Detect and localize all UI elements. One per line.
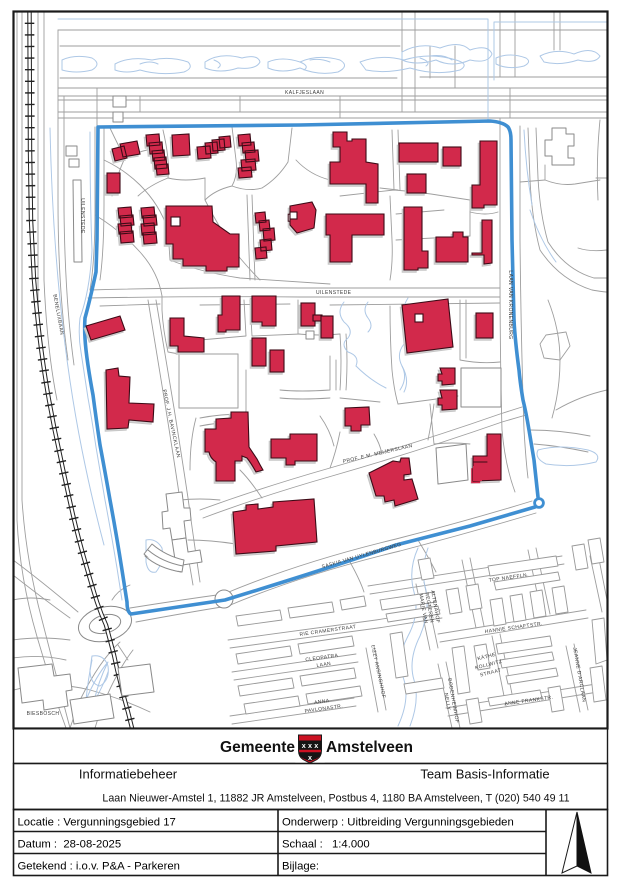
svg-text:Laan Nieuwer-Amstel 1, 11882 J: Laan Nieuwer-Amstel 1, 11882 JR Amstelve… [102,793,569,805]
svg-text:Team Basis-Informatie: Team Basis-Informatie [420,767,549,782]
svg-text:Gemeente: Gemeente [220,739,295,756]
svg-text:UILENSTEDE: UILENSTEDE [316,290,352,296]
svg-text:x: x [302,741,306,750]
svg-text:KALFJESLAAN: KALFJESLAAN [285,90,324,96]
svg-text:BIESBOSCH: BIESBOSCH [27,711,60,717]
svg-text:x: x [314,741,318,750]
svg-text:Locatie : Vergunningsgebied 17: Locatie : Vergunningsgebied 17 [18,817,176,829]
svg-text:Getekend : i.o.v. P&A - Parker: Getekend : i.o.v. P&A - Parkeren [18,861,180,873]
svg-text:Informatiebeheer: Informatiebeheer [79,767,178,782]
svg-text:Schaal :: Schaal : [282,839,323,851]
svg-text:Datum : 28-08-2025: Datum : 28-08-2025 [18,839,122,851]
svg-text:x: x [308,741,312,750]
svg-text:Onderwerp : Uitbreiding Vergun: Onderwerp : Uitbreiding Vergunningsgebie… [282,817,514,829]
svg-text:UILENSTEDE: UILENSTEDE [79,198,85,234]
svg-text:Bijlage:: Bijlage: [282,861,319,873]
svg-text:x: x [308,753,312,762]
svg-text:LAAN VAN KRONENBURG: LAAN VAN KRONENBURG [507,270,513,339]
svg-text:Amstelveen: Amstelveen [326,739,413,756]
svg-text:1:4.000: 1:4.000 [332,839,370,851]
